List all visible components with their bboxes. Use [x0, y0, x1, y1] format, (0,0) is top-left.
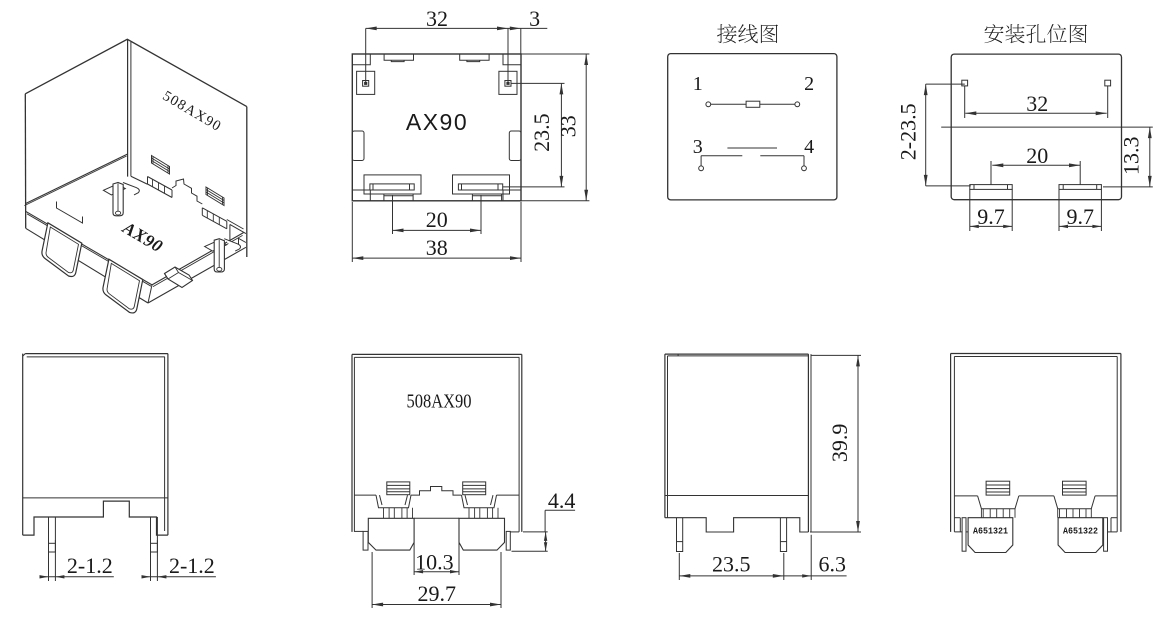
svg-text:33: 33: [556, 115, 581, 137]
svg-text:1: 1: [693, 73, 703, 95]
svg-text:32: 32: [1026, 91, 1048, 116]
svg-text:3: 3: [529, 6, 540, 31]
svg-text:20: 20: [1026, 143, 1048, 168]
svg-text:6.3: 6.3: [819, 551, 847, 576]
svg-text:29.7: 29.7: [417, 581, 456, 606]
svg-text:23.5: 23.5: [529, 113, 554, 152]
svg-text:4.4: 4.4: [548, 488, 576, 513]
svg-text:A651321: A651321: [973, 526, 1008, 537]
svg-text:13.3: 13.3: [1119, 136, 1144, 175]
svg-text:AX90: AX90: [119, 217, 167, 256]
svg-text:A651322: A651322: [1063, 526, 1098, 537]
svg-text:32: 32: [426, 6, 448, 31]
svg-text:9.7: 9.7: [977, 204, 1005, 229]
svg-text:2-1.2: 2-1.2: [169, 553, 215, 578]
svg-text:2: 2: [804, 73, 814, 95]
svg-text:4: 4: [804, 136, 814, 158]
svg-text:38: 38: [426, 235, 448, 260]
svg-text:10.3: 10.3: [415, 549, 454, 574]
svg-text:508AX90: 508AX90: [407, 391, 472, 413]
svg-text:508AX90: 508AX90: [160, 88, 225, 135]
svg-text:2-1.2: 2-1.2: [67, 553, 113, 578]
svg-text:2-23.5: 2-23.5: [895, 103, 920, 160]
svg-text:23.5: 23.5: [712, 551, 751, 576]
svg-text:39.9: 39.9: [827, 424, 852, 463]
svg-text:3: 3: [693, 136, 703, 158]
svg-text:20: 20: [426, 207, 448, 232]
svg-text:9.7: 9.7: [1066, 204, 1094, 229]
svg-text:AX90: AX90: [406, 109, 468, 135]
